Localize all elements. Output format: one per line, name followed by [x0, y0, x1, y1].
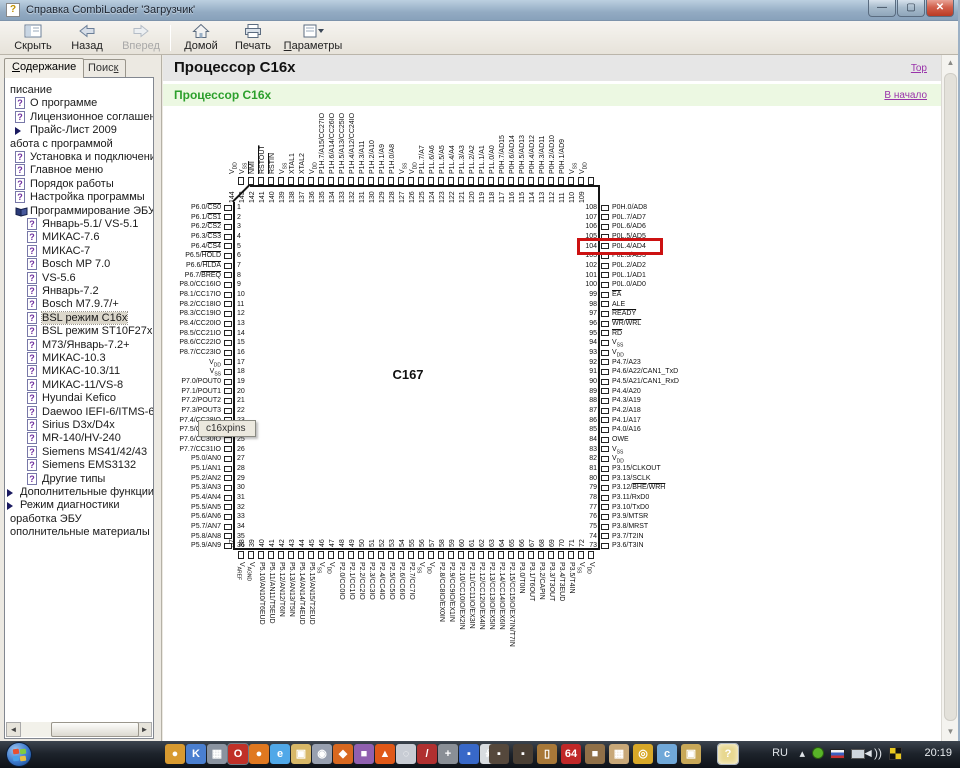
pin-stub [224, 272, 232, 278]
pin-label: VSS [279, 163, 287, 174]
content-vertical-scrollbar[interactable]: ▲ ▼ [941, 55, 958, 741]
pin-number: 11 [237, 300, 244, 309]
pin-label: P4.4/A20 [612, 387, 641, 396]
app-orange-2-icon[interactable]: ◆ [333, 744, 353, 764]
scroll-left-button[interactable]: ◄ [6, 722, 21, 737]
pin-label: P1H.6/A14/CC26IO [329, 113, 337, 174]
pin-number: 46 [319, 539, 327, 547]
pin-number: 63 [489, 539, 497, 547]
tree-item[interactable]: ?BSL режим ST10F27x [5, 325, 153, 338]
pin-stub [458, 551, 464, 559]
pin-stub [478, 177, 484, 185]
scroll-up-button[interactable]: ▲ [942, 55, 959, 72]
pin-label: P5.12/AN12/T6IN [277, 562, 285, 617]
pin-stub [508, 177, 514, 185]
tree-item[interactable]: ?Главное меню [5, 164, 153, 177]
pin-label: P0L.6/AD6 [612, 222, 646, 231]
tray-expand-icon[interactable]: ▴ [799, 747, 805, 760]
pin-label: P2.14/CC14IO/EX6IN [497, 562, 505, 630]
app-media-classic-icon[interactable]: ◉ [312, 744, 332, 764]
pin-stub [358, 551, 364, 559]
question-page-icon: ? [27, 406, 37, 418]
app-brown-icon[interactable]: ■ [585, 744, 605, 764]
app-media-player-icon[interactable]: ◌ [396, 744, 416, 764]
pin-stub [578, 551, 584, 559]
tab-search[interactable]: Поиск [80, 59, 126, 77]
app-purple-icon[interactable]: ■ [354, 744, 374, 764]
pin-stub [538, 551, 544, 559]
pin-label: VDD [327, 562, 335, 574]
pin-stub [448, 177, 454, 185]
pin-stub [601, 301, 609, 307]
pin-number: 31 [237, 493, 245, 502]
tree-item[interactable]: ?Bosch MP 7.0 [5, 258, 153, 271]
scroll-down-button[interactable]: ▼ [942, 724, 959, 741]
scroll-thumb[interactable] [51, 722, 139, 737]
pin-label: P4.2/A18 [612, 406, 641, 415]
pin-stub [588, 177, 594, 185]
pin-stub [601, 388, 609, 394]
tree-item[interactable]: ?МИКАС-11/VS-8 [5, 379, 153, 392]
pin-number: 44 [299, 539, 307, 547]
pin-stub [224, 543, 232, 549]
pin-stub [224, 466, 232, 472]
scroll-right-button[interactable]: ► [137, 722, 152, 737]
pin-label: P0H.6/AD14 [509, 135, 517, 174]
pin-label: P0H.2/AD10 [549, 135, 557, 174]
tree-item[interactable]: ?Daewoo IEFI-6/ITMS-6F [5, 406, 153, 419]
question-page-icon: ? [27, 218, 37, 230]
pin-label: RSTIN [269, 153, 277, 174]
pin-number: 62 [479, 539, 487, 547]
question-page-icon: ? [27, 365, 37, 377]
tree-item[interactable]: оработка ЭБУ [5, 513, 153, 526]
question-page-icon: ? [27, 258, 37, 270]
tree-item[interactable]: ?Siemens EMS3132 [5, 459, 153, 472]
pin-label: P3.10/TxD0 [612, 503, 649, 512]
pin-stub [548, 551, 554, 559]
tree-item[interactable]: ?М73/Январь-7.2+ [5, 339, 153, 352]
pin-number: 39 [249, 539, 257, 547]
pin-number: 94 [556, 338, 597, 347]
app-red-pencil-icon[interactable]: / [417, 744, 437, 764]
pin-stub [224, 311, 232, 317]
pin-number: 43 [289, 539, 297, 547]
pin-label: P3.11/RxD0 [612, 493, 649, 502]
pin-label: RD [612, 329, 622, 338]
pin-number: 9 [237, 280, 241, 289]
pin-number: 12 [237, 309, 245, 318]
pin-stub [224, 359, 232, 365]
pin-label: VDD [612, 348, 624, 357]
tree-item-label: Порядок работы [30, 178, 114, 190]
tree-item-label: Siemens MS41/42/43 [42, 446, 147, 458]
tree-item[interactable]: ?МИКАС-7 [5, 245, 153, 258]
clock[interactable]: 20:19 [924, 747, 952, 759]
pin-label: P3.13/SCLK [612, 474, 651, 483]
pin-label: P2.2/CC2IO [357, 562, 365, 600]
tree-item[interactable]: ?Настройка программы [5, 191, 153, 204]
pin-number: 142 [249, 191, 257, 203]
pin-number: 144 [229, 191, 237, 203]
app-fire-icon[interactable]: ▲ [375, 744, 395, 764]
pin-label: VAGND [247, 562, 255, 581]
pin-number: 1 [237, 203, 241, 212]
contents-tree: ◄ ► писание?О программе?Лицензионное сог… [4, 77, 154, 739]
pin-stub [468, 177, 474, 185]
scroll-thumb[interactable] [944, 73, 957, 721]
tree-item-label: Siemens EMS3132 [42, 459, 136, 471]
pin-stub [378, 177, 384, 185]
pin-label: P5.13/AN13/T5IN [287, 562, 295, 617]
volume-icon[interactable]: ◄)) [862, 746, 882, 760]
pin-number: 96 [556, 319, 597, 328]
tree-item[interactable]: ?Порядок работы [5, 178, 153, 191]
pin-stub [368, 551, 374, 559]
pin-stub [328, 551, 334, 559]
pin-number: 102 [556, 261, 597, 270]
pin-stub [268, 177, 274, 185]
app-door-icon[interactable]: ▯ [537, 744, 557, 764]
tree-item-label: VS-5.6 [42, 272, 76, 284]
tree-item[interactable]: Режим диагностики [5, 499, 153, 512]
pin-number: 135 [319, 191, 327, 203]
pin-number: 51 [369, 539, 377, 547]
question-page-icon: ? [27, 312, 37, 324]
pin-number: 117 [499, 192, 507, 203]
pin-stub [224, 321, 232, 327]
tree-item[interactable]: ?Hyundai Kefico [5, 392, 153, 405]
language-indicator[interactable]: RU [772, 747, 788, 759]
pin-stub [601, 321, 609, 327]
pin-stub [601, 224, 609, 230]
tray-checkered-icon[interactable] [889, 747, 902, 760]
arrow-icon [15, 127, 21, 135]
pin-stub [224, 485, 232, 491]
pin-stub [548, 177, 554, 185]
start-button[interactable] [6, 742, 32, 767]
question-page-icon: ? [15, 191, 25, 203]
pin-stub [368, 177, 374, 185]
pin-number: 45 [309, 539, 317, 547]
tree-item[interactable]: ?Лицензионное соглашение [5, 111, 153, 124]
pin-number: 120 [469, 191, 477, 203]
app-crane-icon[interactable]: + [438, 744, 458, 764]
pin-stub [601, 369, 609, 375]
pin-stub [224, 330, 232, 336]
pin-label: P4.0/A16 [612, 425, 641, 434]
pin-label: P0L.2/AD2 [612, 261, 646, 270]
app-folder-icon[interactable]: ▣ [291, 744, 311, 764]
app-blue-square-icon[interactable]: ▪ [459, 744, 479, 764]
pin-label: VSS [569, 163, 577, 174]
pin-stub [224, 205, 232, 211]
pin-number: 112 [549, 192, 557, 203]
pin-label: P2.11/CC11IO/EX3IN [467, 562, 475, 629]
app-kmplayer-icon[interactable]: K [186, 744, 206, 764]
pin-stub [518, 177, 524, 185]
pin-number: 61 [469, 539, 477, 547]
question-page-icon: ? [27, 379, 37, 391]
pin-stub [601, 205, 609, 211]
pin-label: P1L.4/A4 [449, 145, 457, 174]
pin-stub [224, 533, 232, 539]
pin-number: 59 [449, 539, 457, 547]
question-page-icon: ? [27, 339, 37, 351]
pin-stub [268, 551, 274, 559]
pin-stub [578, 177, 584, 185]
pin-number: 65 [509, 539, 517, 547]
pin-label: P3.2/CAPIN [537, 562, 545, 600]
pin-number: 32 [237, 503, 245, 512]
tree-item[interactable]: писание [5, 84, 153, 97]
pin-stub [398, 177, 404, 185]
pin-stub [458, 177, 464, 185]
app-internet-explorer-icon[interactable]: e [270, 744, 290, 764]
tree-item[interactable]: ?Sirius D3x/D4x [5, 419, 153, 432]
pin-label: P1L.1/A1 [479, 145, 487, 174]
pin-number: 131 [359, 191, 367, 203]
pin-stub [518, 551, 524, 559]
app-image-viewer-icon[interactable]: ▦ [207, 744, 227, 764]
pin-label: VDD [427, 562, 435, 574]
pin-number: 19 [237, 377, 245, 386]
pin-stub [601, 214, 609, 220]
pin-number: 133 [339, 191, 347, 203]
pin-stub [601, 485, 609, 491]
pin-label: P1H.5/A13/CC25IO [339, 113, 347, 174]
tree-item-label: MR-140/HV-240 [42, 432, 121, 444]
question-page-icon: ? [27, 352, 37, 364]
tree-item[interactable]: ?BSL режим C16x [5, 312, 153, 325]
tree-item[interactable]: ?МИКАС-10.3 [5, 352, 153, 365]
tab-contents[interactable]: Содержание [4, 58, 84, 78]
chip-label: C167 [378, 367, 438, 382]
tray-app-icon[interactable] [812, 747, 824, 759]
pin-stub [288, 177, 294, 185]
question-page-icon: ? [27, 245, 37, 257]
pin-stub [224, 524, 232, 530]
pin-number: 97 [556, 309, 597, 318]
pin-number: 125 [419, 191, 427, 203]
pin-number: 128 [389, 191, 397, 203]
pin-number: 64 [499, 539, 507, 547]
question-page-icon: ? [27, 446, 37, 458]
pin-label: P2.0/CC0IO [337, 562, 345, 600]
pin-number: 107 [556, 213, 597, 222]
app-dark-2-icon[interactable]: ▪ [513, 744, 533, 764]
pin-stub [224, 437, 232, 443]
tree-item[interactable]: ?МИКАС-10.3/11 [5, 365, 153, 378]
desktop: ? Справка CombiLoader 'Загрузчик' — ▢ ✕ … [0, 0, 960, 768]
pin-stub [308, 551, 314, 559]
pin-number: 29 [237, 474, 245, 483]
pin-label: XTAL2 [299, 153, 307, 174]
tree-item[interactable]: ?Другие типы [5, 473, 153, 486]
tree-item[interactable]: ?Bosch M7.9.7/+ [5, 298, 153, 311]
pin-label: P2.1/CC1IO [347, 562, 355, 600]
pin-stub [328, 177, 334, 185]
pin-number: 110 [569, 192, 577, 203]
question-page-icon: ? [27, 432, 37, 444]
pin-stub [601, 475, 609, 481]
pin-number: 7 [237, 261, 241, 270]
pin-number: 17 [237, 358, 245, 367]
pin-stub [528, 177, 534, 185]
pin-stub [224, 350, 232, 356]
pin-label: VSS [577, 562, 585, 573]
pin-label: VSS [239, 163, 247, 174]
pin-label: P4.3/A19 [612, 396, 641, 405]
question-page-icon: ? [27, 272, 37, 284]
pin-number: 75 [556, 522, 597, 531]
pin-label: P0L.1/AD1 [612, 271, 646, 280]
pin-number: 113 [539, 192, 547, 203]
tree-item-label: Лицензионное соглашение [30, 111, 154, 123]
pin-number: 54 [399, 539, 407, 547]
app-swirl-icon[interactable]: c [657, 744, 677, 764]
pin-stub [558, 177, 564, 185]
pin-stub [408, 551, 414, 559]
app-folder-2-icon[interactable]: ▣ [681, 744, 701, 764]
pin-stub [224, 234, 232, 240]
app-opera-icon[interactable]: O [228, 744, 248, 764]
tree-item[interactable]: ?VS-5.6 [5, 272, 153, 285]
pin-label: P4.7/A23 [612, 358, 641, 367]
pin-label: P5.15/AN15/T2EUD [307, 562, 315, 625]
pin-number: 89 [556, 387, 597, 396]
question-page-icon: ? [15, 111, 25, 123]
pin-stub [498, 551, 504, 559]
pin-number: 79 [556, 483, 597, 492]
pin-label: NMI [249, 161, 257, 174]
pin-label: P3.3/T3OUT [547, 562, 555, 601]
pin-stub [601, 533, 609, 539]
pin-stub [488, 177, 494, 185]
app-search-icon[interactable]: ◎ [633, 744, 653, 764]
pin-label: P3.4/T3EUD [557, 562, 565, 601]
pin-stub [378, 551, 384, 559]
pin-number: 118 [489, 192, 497, 203]
tree-item[interactable]: Дополнительные функции [5, 486, 153, 499]
pin-number: 124 [429, 191, 437, 203]
pin-stub [308, 177, 314, 185]
pin-label: P2.13/CC13IO/EX5IN [487, 562, 495, 630]
pin-stub [288, 551, 294, 559]
app-64-icon[interactable]: 64 [561, 744, 581, 764]
pin-stub [238, 551, 244, 559]
app-dark-1-icon[interactable]: ▪ [489, 744, 509, 764]
pin-label: P3.1/T6OUT [527, 562, 535, 601]
pin-label: P3.7/T2IN [612, 532, 644, 541]
pin-number: 73 [556, 541, 597, 550]
tree-item[interactable]: ?MR-140/HV-240 [5, 432, 153, 445]
pin-number: 123 [439, 191, 447, 203]
pin-stub [568, 177, 574, 185]
pin-number: 136 [309, 191, 317, 203]
tree-item-label: оработка ЭБУ [10, 513, 82, 525]
tree-item-label: М73/Январь-7.2+ [42, 339, 130, 351]
pin-number: 80 [556, 474, 597, 483]
pin-label: P2.4/CC4IO [377, 562, 385, 600]
pin-number: 5 [237, 242, 241, 251]
pin-label: P2.9/CC9IO/EX1IN [447, 562, 455, 622]
question-page-icon: ? [27, 231, 37, 243]
pin-number: 60 [459, 539, 467, 547]
pin-label: VSS [612, 445, 623, 454]
pin-stub [224, 253, 232, 259]
tree-item[interactable]: ?Установка и подключение [5, 151, 153, 164]
tree-item[interactable]: абота с программой [5, 138, 153, 151]
pin-label: VDD [579, 162, 587, 174]
pin-number: 58 [439, 539, 447, 547]
pin-label: P2.10/CC10IO/EX2IN [457, 562, 465, 630]
app-firefox-icon[interactable]: ● [249, 744, 269, 764]
pin-number: 121 [459, 191, 467, 203]
pin-number: 33 [237, 512, 245, 521]
question-page-icon: ? [15, 164, 25, 176]
tree-item[interactable]: ?Январь-7.2 [5, 285, 153, 298]
pin-number: 81 [556, 464, 597, 473]
pin-label: XTAL1 [289, 153, 297, 174]
pin-number: 67 [529, 539, 537, 547]
tree-horizontal-scrollbar[interactable]: ◄ ► [6, 722, 152, 737]
pin-number: 95 [556, 329, 597, 338]
pin-stub [418, 551, 424, 559]
pin-number: 35 [237, 532, 245, 541]
tree-item[interactable]: Прайс-Лист 2009 [5, 124, 153, 137]
pin-stub [601, 272, 609, 278]
pin-number: 139 [279, 191, 287, 203]
pin-label: P3.9/MTSR [612, 512, 648, 521]
pin-label: VSS [612, 338, 623, 347]
pin-number: 16 [237, 348, 245, 357]
pin-stub [601, 398, 609, 404]
pin-number: 78 [556, 493, 597, 502]
tree-item[interactable]: ополнительные материалы [5, 526, 153, 539]
pin-number: 20 [237, 387, 245, 396]
pin-stub [428, 551, 434, 559]
tree-item-label: Режим диагностики [20, 499, 120, 511]
pin-stub [538, 177, 544, 185]
pin-label: P0H.1/AD9 [559, 139, 567, 174]
pin-number: 84 [556, 435, 597, 444]
pin-stub [601, 466, 609, 472]
pin-stub [358, 177, 364, 185]
app-orange-ball-icon[interactable]: ● [165, 744, 185, 764]
pin-label: P5.11/AN11/T5EUD [267, 562, 275, 624]
pin-number: 126 [409, 191, 417, 203]
image-tooltip: c16xpins [198, 420, 256, 437]
tree-item[interactable]: ?Январь-5.1/ VS-5.1 [5, 218, 153, 231]
pin-label: VDD [587, 562, 595, 574]
pin-stub [601, 446, 609, 452]
app-photo-icon[interactable]: ▦ [609, 744, 629, 764]
pin-number: 26 [237, 445, 245, 454]
pin-stub [601, 524, 609, 530]
question-page-icon: ? [15, 97, 25, 109]
tree-item[interactable]: ?О программе [5, 97, 153, 110]
tree-item[interactable]: ?Siemens MS41/42/43 [5, 446, 153, 459]
keyboard-flag-icon[interactable] [830, 749, 845, 759]
tree-item[interactable]: ?МИКАС-7.6 [5, 231, 153, 244]
pin-stub [224, 398, 232, 404]
pin-label: WR/WRL [612, 319, 641, 328]
pin-label: OWE [612, 435, 629, 444]
app-help-viewer-icon[interactable]: ? [718, 744, 738, 764]
pin-stub [258, 551, 264, 559]
tree-item[interactable]: Программирование ЭБУ [5, 205, 153, 218]
